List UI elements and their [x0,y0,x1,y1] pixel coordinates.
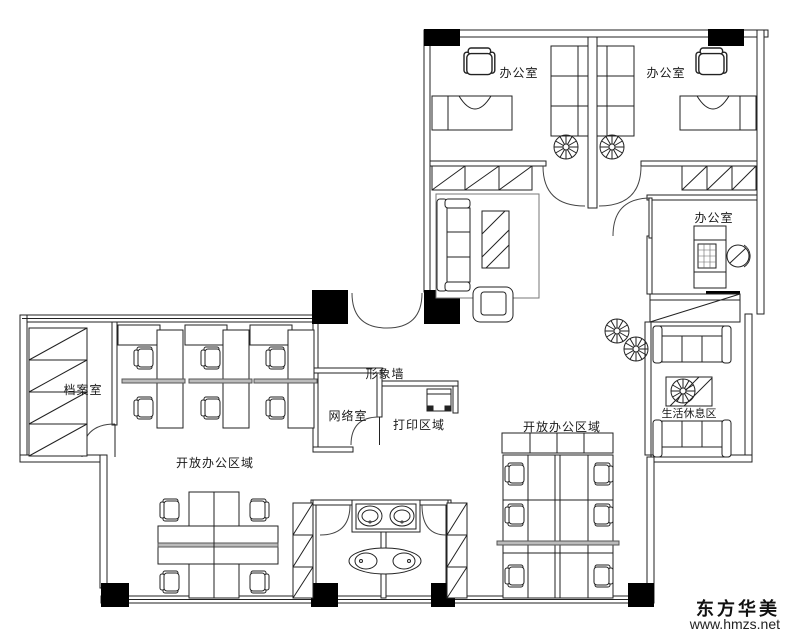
workstation-pod-6 [497,433,619,598]
printer [427,389,451,411]
office3-furniture [694,226,750,288]
sofa-three-seat [437,199,470,291]
floor-plan-drawing [0,0,800,640]
office2-furniture [680,48,756,130]
label-open-office-left: 开放办公区域 [176,454,254,471]
rest-area-furniture [605,319,731,457]
office1-door [543,166,585,206]
column [708,29,744,46]
column [424,29,460,46]
task-chair [160,499,179,521]
label-feature-wall: 形象墙 [365,365,404,382]
office2-cabinet [682,166,756,190]
task-chair [505,565,524,587]
office1-furniture [432,48,512,130]
toilet [355,553,377,569]
column [312,290,348,324]
office-chair [464,48,495,75]
label-office-top-left: 办公室 [499,64,538,81]
plant-icon [624,337,648,361]
plant-icon [605,319,629,343]
task-chair [250,499,269,521]
swivel-chair [727,245,750,267]
desk [680,96,756,130]
bookshelf-right [597,46,634,136]
task-chair [594,463,613,485]
label-print-area: 打印区域 [393,416,445,433]
bathroom-shelf-left [293,503,313,598]
task-chair [201,347,220,369]
workstation-pod-4 [158,492,278,598]
office1-cabinet [432,166,532,190]
task-chair [266,397,285,419]
toilets [349,548,421,574]
label-open-office-right: 开放办公区域 [523,418,601,435]
task-chair [201,397,220,419]
label-office-right: 办公室 [694,209,733,226]
workstations-upper-left [118,325,317,428]
sofa-top [653,326,731,363]
task-chair [505,463,524,485]
bathroom-shelf-right [447,503,467,598]
armchair [473,287,513,322]
column [101,583,129,607]
sofa-bottom [653,420,731,457]
task-chair [250,571,269,593]
entrance-door-right [387,293,422,328]
desk [432,96,512,130]
bookshelf-left [551,46,588,136]
task-chair [134,347,153,369]
task-chair [266,347,285,369]
plant-icon [554,135,578,159]
label-rest-area: 生活休息区 [662,405,717,421]
bathroom-door-right [422,505,446,535]
floor-plan: 办公室 办公室 办公室 档案室 形象墙 网络室 打印区域 开放办公区域 开放办公… [0,0,800,640]
watermark-url: www.hmzs.net [690,616,780,632]
toilet [393,553,415,569]
column [311,583,338,607]
label-network-room: 网络室 [328,407,367,424]
label-office-top-right: 办公室 [646,64,685,81]
bathroom-door-left [320,505,350,535]
task-chair [134,397,153,419]
entrance-door-left [352,293,387,328]
office3-door [613,198,651,236]
office-chair [696,48,727,75]
coffee-table [482,211,509,268]
task-chair [594,565,613,587]
task-chair [505,504,524,526]
column [628,583,654,607]
office3-cabinet [650,294,740,322]
label-archive-room: 档案室 [63,381,102,398]
task-chair [160,571,179,593]
plant-icon [671,379,695,403]
plant-icon [600,135,624,159]
task-chair [594,504,613,526]
sink-counter [352,500,420,532]
